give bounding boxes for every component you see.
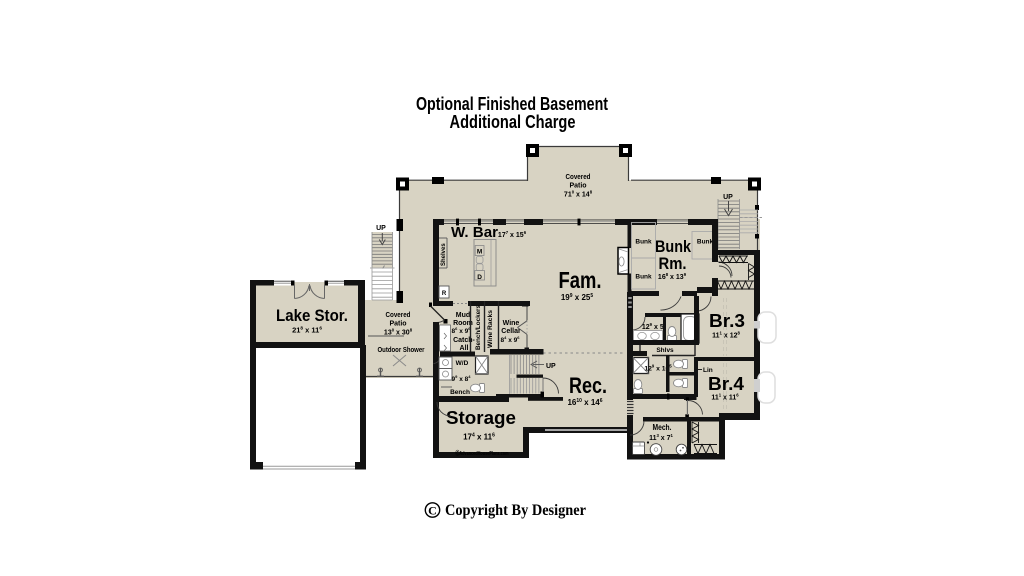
svg-text:Wine Racks: Wine Racks <box>488 309 494 348</box>
svg-text:Lin: Lin <box>703 367 713 374</box>
svg-text:Covered: Covered <box>386 312 411 319</box>
svg-text:W/D: W/D <box>456 360 469 367</box>
svg-text:Br.4: Br.4 <box>708 374 744 394</box>
svg-text:Mud: Mud <box>456 312 470 319</box>
svg-text:130 x 308: 130 x 308 <box>384 328 413 337</box>
svg-text:Mech.: Mech. <box>653 423 672 432</box>
svg-text:Br.3: Br.3 <box>709 311 745 331</box>
svg-text:Catch-: Catch- <box>453 337 475 344</box>
svg-text:Shelves: Shelves <box>441 243 447 266</box>
svg-text:Covered: Covered <box>566 174 591 181</box>
svg-text:W. Bar: W. Bar <box>451 224 498 241</box>
svg-text:710 x 148: 710 x 148 <box>564 190 593 199</box>
svg-text:Fam.: Fam. <box>559 267 602 293</box>
svg-text:All: All <box>460 345 469 352</box>
svg-text:Shlvs: Shlvs <box>656 347 674 354</box>
svg-text:UP: UP <box>723 194 733 201</box>
svg-text:111 x 116: 111 x 116 <box>711 393 739 402</box>
svg-text:Rm.: Rm. <box>659 254 687 273</box>
svg-text:Copyright By Designer: Copyright By Designer <box>445 502 586 519</box>
svg-text:Outdoor Shower: Outdoor Shower <box>378 345 425 354</box>
svg-text:199 x 255: 199 x 255 <box>561 293 593 302</box>
svg-text:D: D <box>477 274 482 281</box>
svg-text:Bench: Bench <box>450 389 470 396</box>
svg-text:Wine: Wine <box>503 320 520 327</box>
svg-text:C: C <box>428 504 437 518</box>
svg-text:R: R <box>442 291 447 297</box>
svg-text:UP: UP <box>546 363 556 370</box>
svg-text:Rec.: Rec. <box>569 373 607 398</box>
svg-text:Bunk: Bunk <box>697 239 714 246</box>
svg-text:111 x 128: 111 x 128 <box>712 331 740 340</box>
svg-text:218 x 116: 218 x 116 <box>292 326 322 335</box>
svg-text:UP: UP <box>376 225 386 232</box>
svg-text:177 x 156: 177 x 156 <box>498 230 527 239</box>
svg-text:Storage: Storage <box>446 408 516 428</box>
svg-text:Additional Charge: Additional Charge <box>450 112 576 132</box>
svg-text:113 x 71: 113 x 71 <box>649 433 673 442</box>
svg-text:174 x 116: 174 x 116 <box>463 433 495 442</box>
svg-text:Patio: Patio <box>389 321 406 328</box>
svg-text:Bench/Lockers: Bench/Lockers <box>476 304 482 350</box>
svg-text:M: M <box>477 249 482 256</box>
svg-text:Optional Finished Basement: Optional Finished Basement <box>416 94 608 114</box>
svg-text:Bunk: Bunk <box>635 274 652 281</box>
svg-text:Cellar: Cellar <box>501 328 521 335</box>
svg-text:Patio: Patio <box>569 183 586 190</box>
svg-text:Lake Stor.: Lake Stor. <box>276 307 348 325</box>
svg-text:ⒸAdvancedHousePlans.com: ⒸAdvancedHousePlans.com <box>456 449 509 457</box>
svg-text:168 x 139: 168 x 139 <box>658 272 687 281</box>
svg-text:Bunk: Bunk <box>635 239 652 246</box>
svg-text:1610 x 146: 1610 x 146 <box>567 398 602 407</box>
